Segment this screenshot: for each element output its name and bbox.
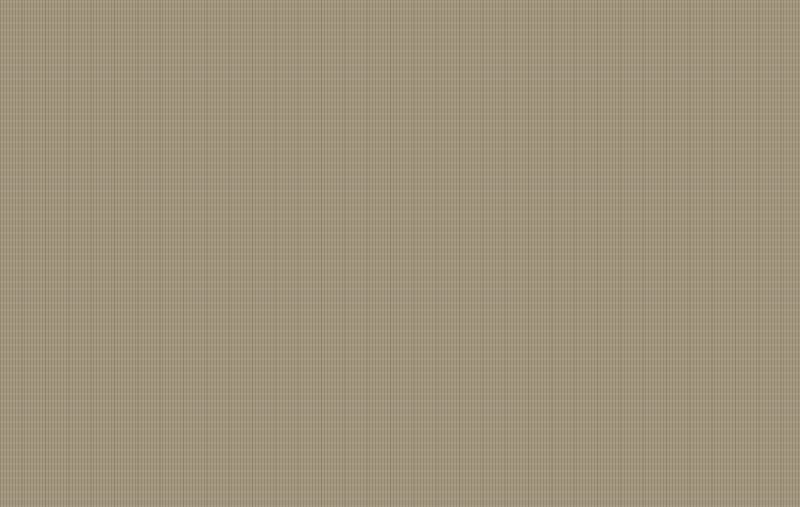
- brand-logo: [0, 0, 9, 1]
- doors-layer: [0, 0, 800, 507]
- floor-plan: [0, 0, 800, 507]
